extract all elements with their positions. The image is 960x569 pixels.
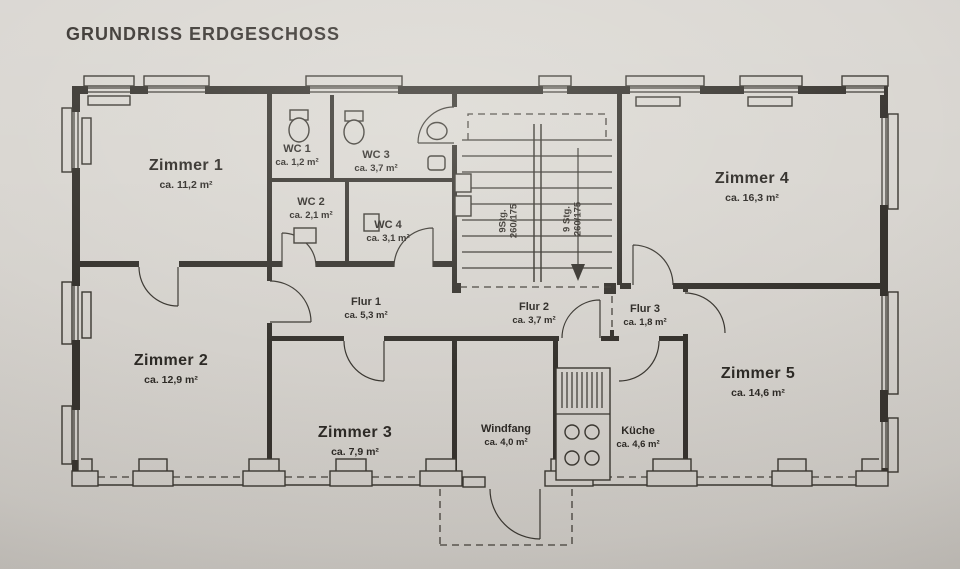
room-label-wc1: WC 1 ca. 1,2 m² [275,143,318,169]
room-label-zimmer2: Zimmer 2 ca. 12,9 m² [134,351,208,387]
floorplan-photo: GRUNDRISS ERDGESCHOSS [0,0,960,569]
room-label-flur1: Flur 1 ca. 5,3 m² [344,296,387,322]
floorplan-drawing [0,0,960,569]
room-label-windfang: Windfang ca. 4,0 m² [481,423,531,449]
room-label-flur3: Flur 3 ca. 1,8 m² [623,303,666,329]
stair-annotation-left: 9Stg. 260/175 [498,204,521,238]
room-label-wc4: WC 4 ca. 3,1 m² [366,219,409,245]
room-label-zimmer4: Zimmer 4 ca. 16,3 m² [715,169,789,205]
stair-annotation-right: 9 Stg. 260/175 [562,202,585,236]
windows [62,76,898,472]
stairs [455,114,612,287]
entrance-porch [440,477,572,545]
room-label-wc3: WC 3 ca. 3,7 m² [354,149,397,175]
walls [72,86,888,486]
page-title: GRUNDRISS ERDGESCHOSS [66,24,340,45]
room-label-zimmer3: Zimmer 3 ca. 7,9 m² [318,423,392,459]
room-label-wc2: WC 2 ca. 2,1 m² [289,196,332,222]
kitchen-unit [556,368,610,480]
room-label-flur2: Flur 2 ca. 3,7 m² [512,301,555,327]
room-label-kueche: Küche ca. 4,6 m² [616,425,659,451]
room-label-zimmer1: Zimmer 1 ca. 11,2 m² [149,156,223,192]
room-label-zimmer5: Zimmer 5 ca. 14,6 m² [721,364,795,400]
